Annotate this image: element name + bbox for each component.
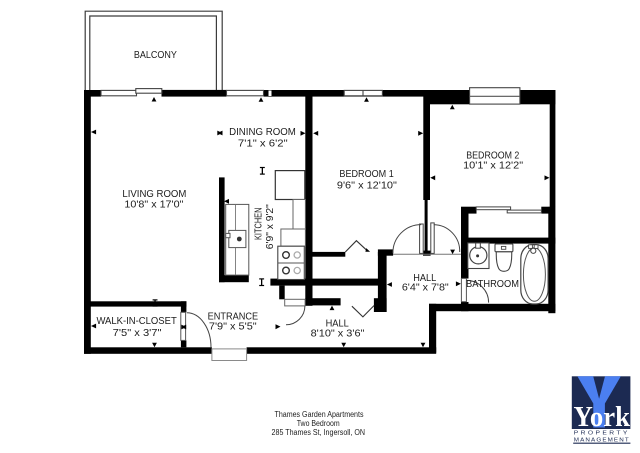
svg-text:WALK-IN-CLOSET: WALK-IN-CLOSET xyxy=(96,315,177,327)
svg-text:BEDROOM 1: BEDROOM 1 xyxy=(339,168,394,180)
svg-text:7'5" x 3'7": 7'5" x 3'7" xyxy=(113,327,162,339)
svg-text:6'9" x 9'2": 6'9" x 9'2" xyxy=(264,204,276,249)
svg-text:PROPERTY: PROPERTY xyxy=(574,431,630,437)
svg-text:York: York xyxy=(574,402,631,433)
svg-text:10'8" x 17'0": 10'8" x 17'0" xyxy=(124,198,183,210)
svg-text:BALCONY: BALCONY xyxy=(134,49,177,61)
svg-text:6'4" x 7'8": 6'4" x 7'8" xyxy=(402,282,449,294)
svg-text:Two Bedroom: Two Bedroom xyxy=(297,419,340,428)
svg-text:285 Thames St, Ingersoll, ON: 285 Thames St, Ingersoll, ON xyxy=(272,428,366,437)
svg-text:9'6" x 12'10": 9'6" x 12'10" xyxy=(337,179,397,191)
svg-text:7'9" x 5'5": 7'9" x 5'5" xyxy=(209,320,257,332)
svg-text:8'10" x 3'6": 8'10" x 3'6" xyxy=(311,328,365,340)
svg-text:KITCHEN: KITCHEN xyxy=(252,208,264,241)
svg-text:7'1" x 6'2": 7'1" x 6'2" xyxy=(238,138,288,150)
svg-text:Thames Garden Apartments: Thames Garden Apartments xyxy=(275,410,364,419)
svg-text:10'1" x 12'2": 10'1" x 12'2" xyxy=(463,159,523,171)
svg-text:DINING ROOM: DINING ROOM xyxy=(229,126,296,138)
svg-text:BATHROOM: BATHROOM xyxy=(466,278,519,290)
